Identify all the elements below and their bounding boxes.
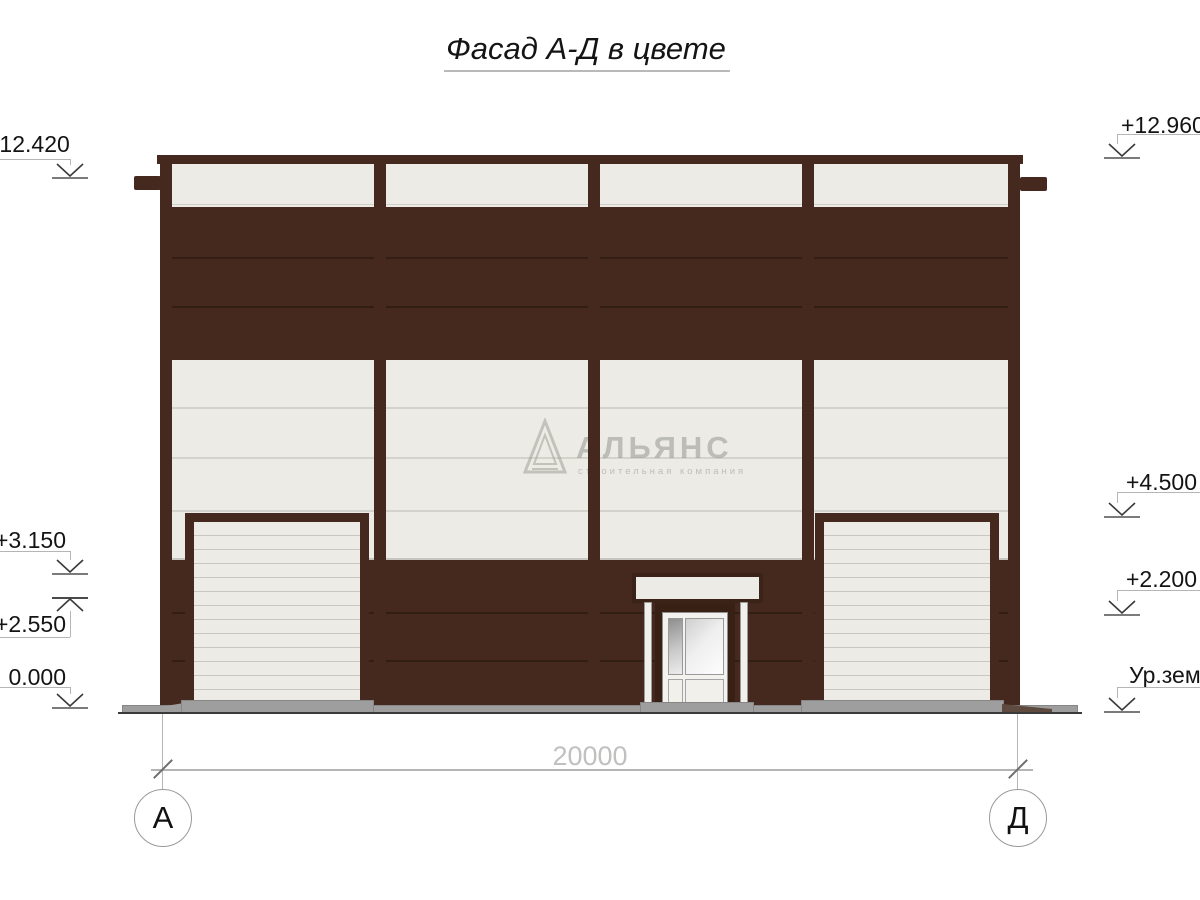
roller-door-left bbox=[194, 522, 360, 704]
watermark-logo-icon bbox=[522, 418, 568, 476]
leader-line bbox=[0, 687, 70, 688]
axis-letter-a: А bbox=[153, 800, 174, 836]
facade-mullion bbox=[802, 163, 814, 710]
corner-pilaster-left bbox=[160, 163, 172, 710]
leader-line bbox=[1117, 134, 1200, 135]
door-glass-right bbox=[685, 618, 724, 675]
corner-pilaster-right bbox=[1008, 163, 1020, 710]
leader-line bbox=[0, 551, 70, 552]
door-glass-left bbox=[668, 618, 683, 675]
canopy-post-right bbox=[740, 602, 748, 710]
level-label: +2.550 bbox=[0, 611, 66, 638]
level-tick bbox=[1104, 711, 1140, 713]
leader-line bbox=[0, 159, 70, 160]
axis-bubble-d: Д bbox=[989, 789, 1047, 847]
leader-line bbox=[1117, 590, 1200, 591]
gutter-tab-right bbox=[1020, 177, 1047, 191]
facade-mullion bbox=[374, 163, 386, 710]
door-panel-right bbox=[685, 679, 724, 704]
facade-mullion bbox=[588, 163, 600, 710]
ground-line bbox=[118, 712, 1082, 714]
level-arrow-down-icon bbox=[55, 559, 85, 573]
level-tick bbox=[1104, 614, 1140, 616]
parapet-cap bbox=[157, 155, 1023, 164]
roller-door-right bbox=[824, 522, 990, 704]
drawing-title: Фасад А-Д в цвете bbox=[0, 31, 1172, 67]
watermark-tagline: строительная компания bbox=[578, 466, 746, 477]
level-arrow-down-icon bbox=[1107, 697, 1137, 711]
level-tick bbox=[52, 707, 88, 709]
level-arrow-down-icon bbox=[1107, 502, 1137, 516]
leader-drop bbox=[70, 611, 71, 637]
level-tick bbox=[52, 573, 88, 575]
level-arrow-down-icon bbox=[55, 163, 85, 177]
axis-letter-d: Д bbox=[1008, 800, 1029, 836]
level-arrow-down-icon bbox=[1107, 143, 1137, 157]
level-tick bbox=[52, 177, 88, 179]
title-underline bbox=[444, 70, 730, 72]
canopy-post-left bbox=[644, 602, 652, 710]
axis-extension-line-d bbox=[1017, 714, 1018, 789]
level-label: Ур.зем. bbox=[1129, 662, 1200, 689]
level-arrow-down-icon bbox=[55, 693, 85, 707]
watermark: АЛЬЯНС строительная компания bbox=[522, 418, 752, 484]
leader-line bbox=[1117, 492, 1200, 493]
level-arrow-up-icon bbox=[55, 598, 85, 612]
dimension-value: 20000 bbox=[480, 741, 700, 772]
level-label: +3.150 bbox=[0, 527, 66, 554]
level-label: +2.200 bbox=[1126, 566, 1197, 593]
level-label: +12.420 bbox=[0, 131, 66, 158]
entrance-door bbox=[662, 612, 728, 708]
door-panel-left bbox=[668, 679, 683, 704]
axis-extension-line-a bbox=[162, 714, 163, 789]
gutter-tab-left bbox=[134, 176, 161, 190]
leader-line bbox=[1117, 687, 1200, 688]
level-tick bbox=[1104, 157, 1140, 159]
axis-bubble-a: А bbox=[134, 789, 192, 847]
entrance-canopy bbox=[632, 573, 763, 603]
level-arrow-down-icon bbox=[1107, 600, 1137, 614]
level-tick bbox=[1104, 516, 1140, 518]
